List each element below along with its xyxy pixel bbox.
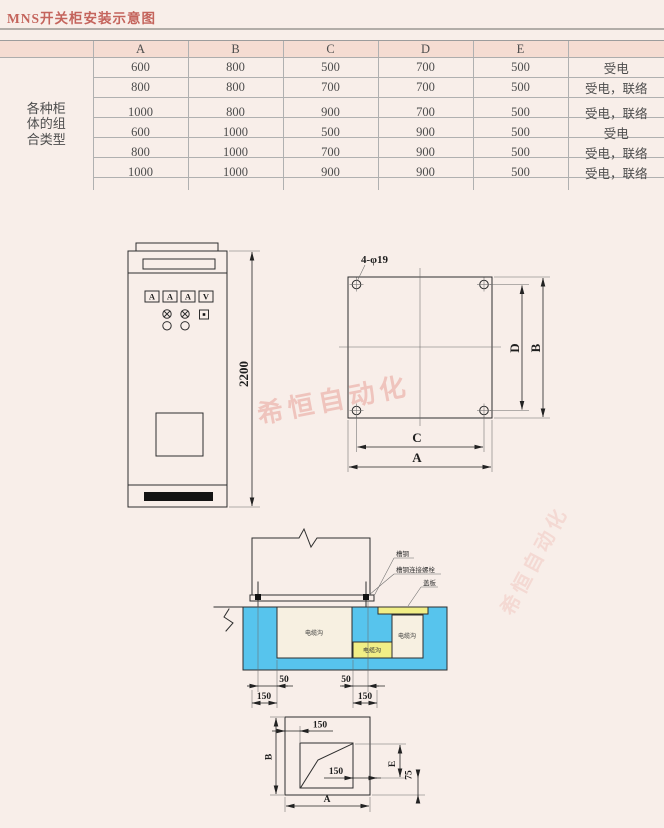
cell: 700 [283,78,378,98]
cable-trench-label: 电缆沟 [305,629,323,637]
col-header-d: D [378,41,473,58]
front-view: A A A V 2200 [128,243,260,507]
front-height-dim: 2200 [236,361,251,387]
top-view: 4-φ19 D B C A [339,254,550,472]
cell: 800 [188,58,283,78]
cell: 800 [93,78,188,98]
cell: 900 [378,118,473,138]
section-dim-150-left: 150 [257,692,272,702]
cell: 500 [473,98,568,118]
cell: 800 [93,138,188,158]
cell: 700 [378,98,473,118]
cell: 1000 [93,98,188,118]
cell: 600 [93,58,188,78]
col-header-b: B [188,41,283,58]
cell-type: 受电，联络 [568,78,664,98]
cable-trench-label: 电缆沟 [398,632,416,640]
cell: 500 [283,58,378,78]
top-dim-b: B [528,343,543,352]
cell: 900 [283,158,378,178]
top-dim-d: D [507,343,522,352]
table-row: 800 1000 700 900 500 受电，联络 [0,138,664,158]
table-row: 各种柜 体的组 合类型 600 800 500 700 500 受电 [0,58,664,78]
cell: 500 [473,58,568,78]
meter-label: V [203,292,210,302]
cell: 900 [283,98,378,118]
cell: 500 [473,78,568,98]
installation-drawing: A A A V 2200 [0,228,664,828]
cell-type: 受电 [568,58,664,78]
table-row: 1000 800 900 700 500 受电，联络 [0,98,664,118]
page-title: MNS开关柜安装示意图 [7,7,156,27]
cell: 900 [378,158,473,178]
cable-trench-label: 电缆沟 [363,647,381,655]
cell: 500 [283,118,378,138]
bottom-dim-150-mid: 150 [329,767,344,777]
meter-label: A [185,292,192,302]
top-dim-c: C [412,430,421,445]
top-dim-a: A [412,450,422,465]
connecting-bolt-label: 槽钢连接螺栓 [396,565,436,574]
bottom-dim-a: A [324,795,331,805]
hole-callout: 4-φ19 [361,254,389,266]
cell: 1000 [188,118,283,138]
cell: 800 [188,98,283,118]
col-header-e: E [473,41,568,58]
col-header-type [568,41,664,58]
section-view: 槽钢 槽钢连接螺栓 盖板 电缆沟 电缆沟 电缆沟 50 [214,529,447,708]
col-header-a: A [93,41,188,58]
group-label-cell: 各种柜 体的组 合类型 [0,58,93,190]
bottom-plan-view: B A 150 150 E 75 [265,717,426,812]
table-row: 600 1000 500 900 500 受电 [0,118,664,138]
title-underline [0,28,664,30]
cover-plate-label: 盖板 [423,578,437,587]
bottom-dim-e: E [388,761,398,767]
cell: 500 [473,118,568,138]
cell: 900 [378,138,473,158]
table-row: 800 800 700 700 500 受电，联络 [0,78,664,98]
col-header-c: C [283,41,378,58]
cabinet-spec-table: A B C D E 各种柜 体的组 合类型 600 800 500 700 50… [0,40,664,190]
cell: 500 [473,138,568,158]
bottom-dim-150-top: 150 [313,721,328,731]
cell: 700 [378,78,473,98]
table-header-row: A B C D E [0,41,664,58]
cell: 700 [283,138,378,158]
meter-label: A [149,292,156,302]
meter-label: A [167,292,174,302]
corner-cell [0,41,93,58]
cell: 600 [93,118,188,138]
section-dim-50-left: 50 [279,675,289,685]
table-row: 1000 1000 900 900 500 受电，联络 [0,158,664,178]
cell: 1000 [188,138,283,158]
section-dim-150-right: 150 [358,692,373,702]
cell: 700 [378,58,473,78]
cell-type: 受电，联络 [568,98,664,118]
channel-steel-label: 槽钢 [396,549,410,558]
cell: 1000 [93,158,188,178]
bottom-dim-b: B [265,753,275,760]
cell: 500 [473,158,568,178]
bottom-dim-75: 75 [405,770,415,780]
section-dim-50-right: 50 [341,675,351,685]
cell: 800 [188,78,283,98]
cell: 1000 [188,158,283,178]
